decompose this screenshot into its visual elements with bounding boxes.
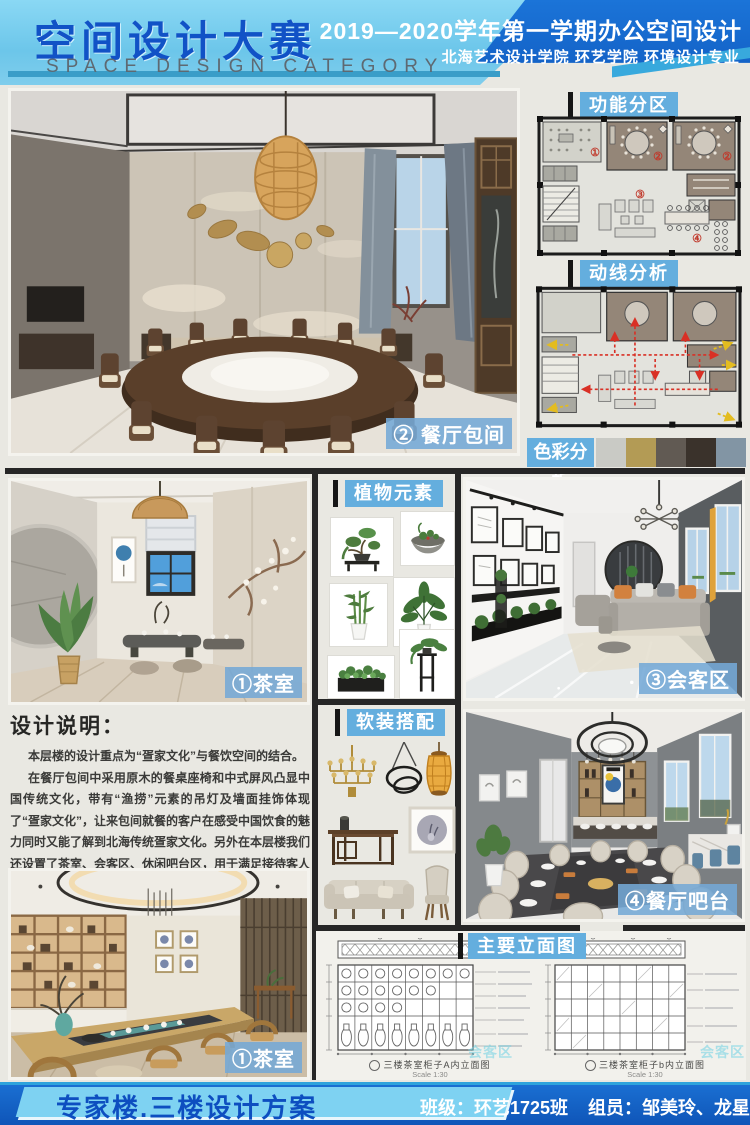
meeting-area-photo: ③会客区 — [463, 477, 745, 701]
soft-item-lantern — [424, 742, 454, 800]
color-swatch-3 — [656, 438, 686, 467]
divider-vertical-right — [455, 474, 461, 925]
plant-image-bonsai — [331, 518, 393, 576]
watermark-2: 会客区 — [700, 1042, 745, 1062]
zoning-label: 功能分区 — [580, 92, 678, 119]
tea-room-photo-1: ①茶室 — [8, 478, 310, 705]
dining-room-render — [11, 91, 517, 453]
elevation-scale-a: Scale 1:30 — [330, 1070, 530, 1079]
plant-image-planter-box — [328, 656, 394, 698]
tea-room-2-label: ①茶室 — [225, 1042, 302, 1073]
footer-class: 班级：环艺1725班 — [420, 1094, 568, 1120]
plant-image-stone-bowl — [401, 512, 454, 565]
course-title: 2019—2020学年第一学期办公空间设计 — [320, 12, 742, 46]
soft-item-wall-art — [408, 806, 456, 854]
dining-bar-label: ④餐厅吧台 — [618, 884, 737, 915]
color-analysis-label: 色彩分析 — [527, 438, 594, 467]
soft-label: 软装搭配 — [347, 709, 445, 736]
color-swatch-1 — [596, 438, 626, 467]
design-notes: 设计说明： 本层楼的设计重点为“疍家文化”与餐饮空间的结合。 在餐厅包间中采用原… — [10, 710, 310, 866]
elevation-scale-b: Scale 1:30 — [550, 1070, 740, 1079]
soft-label-bar — [335, 709, 340, 736]
school-name: 北海艺术设计学院 环艺学院 环境设计专业 — [442, 46, 740, 67]
watermark-1: 会客区 — [468, 1042, 513, 1062]
plan-number-2b: ② — [722, 151, 732, 163]
color-swatch-4 — [686, 438, 716, 467]
zoning-label-bar — [568, 92, 573, 119]
meeting-area-label: ③会客区 — [639, 663, 737, 694]
design-notes-paragraph-1: 本层楼的设计重点为“疍家文化”与餐饮空间的结合。 — [10, 746, 310, 768]
footer-project-title: 专家楼.三楼设计方案 — [56, 1088, 317, 1125]
design-notes-title: 设计说明： — [10, 710, 310, 740]
poster-root: 空间设计大赛 SPACE DESIGN CATEGORY 2019—2020学年… — [0, 0, 750, 1125]
plant-image-bamboo — [330, 584, 387, 646]
footer-members: 组员：邹美玲、龙星羽、申成洁、付成军 — [588, 1094, 750, 1120]
soft-item-chandelier — [324, 745, 380, 803]
plants-label: 植物元素 — [345, 480, 443, 507]
plan-number-1: ① — [590, 147, 600, 159]
header: 空间设计大赛 SPACE DESIGN CATEGORY 2019—2020学年… — [0, 0, 750, 85]
floor-plan-circulation — [536, 286, 742, 432]
circulation-label-bar — [568, 260, 573, 287]
plants-label-bar — [333, 480, 338, 507]
tea-room-photo-2: ①茶室 — [8, 868, 310, 1080]
tea-room-1-label: ①茶室 — [225, 667, 302, 698]
color-swatch-5 — [716, 438, 746, 467]
dining-bar-photo: ④餐厅吧台 — [463, 709, 745, 922]
poster-title-en: SPACE DESIGN CATEGORY — [46, 56, 444, 78]
elevation-label: 主要立面图 — [468, 933, 586, 959]
soft-item-armchair — [420, 862, 454, 922]
dining-room-photo: ② 餐厅包间 — [8, 88, 520, 456]
plan-number-3: ③ — [635, 189, 645, 201]
circulation-label: 动线分析 — [580, 260, 678, 287]
divider-horizontal-1 — [5, 468, 745, 474]
plant-image-stand — [400, 630, 454, 698]
soft-item-sofa — [322, 868, 416, 924]
soft-item-ring-pendant — [384, 742, 424, 802]
floor-plan-zoning: ① ② ② ③ ④ — [536, 116, 742, 256]
plan-number-2a: ② — [653, 151, 663, 163]
plan-number-4: ④ — [692, 233, 702, 245]
dining-room-label: ② 餐厅包间 — [386, 418, 512, 449]
color-swatch-2 — [626, 438, 656, 467]
divider-horizontal-2 — [318, 699, 455, 705]
elevation-label-bar — [458, 933, 463, 959]
soft-item-console-table — [324, 812, 402, 868]
